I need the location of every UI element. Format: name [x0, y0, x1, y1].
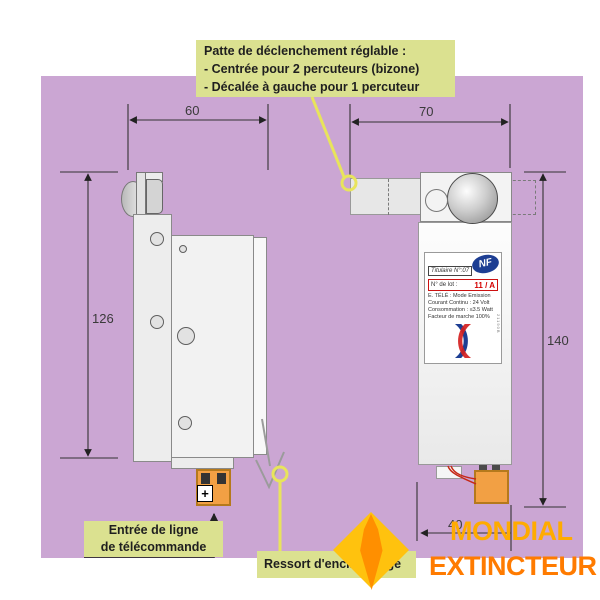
coil-connector [474, 470, 509, 504]
connector-terminal [217, 473, 226, 484]
note-entree-line2: de télécommande [84, 539, 223, 556]
left-device-roller-cap [146, 179, 163, 214]
brand-name-extincteur: EXTINCTEUR [429, 551, 597, 582]
note-entree-line1: Entrée de ligne [84, 522, 223, 539]
left-device-plate [133, 214, 172, 462]
dim-126-value: 126 [92, 311, 114, 326]
label-lot-caption: N° de lot : [431, 282, 457, 288]
dim-70-value: 70 [419, 104, 433, 119]
brand-flame-icon [333, 512, 413, 592]
plus-terminal-label: + [197, 485, 213, 502]
diagram-canvas: + NF Titulaire N°:07 N° de lot : 11 / A … [0, 0, 600, 600]
label-lot-value: 11 / A [474, 281, 495, 290]
screw-hole [179, 245, 187, 253]
screw-hole [150, 232, 164, 246]
dim-140-value: 140 [547, 333, 569, 348]
striker-knob [447, 173, 498, 224]
left-device-bracket [136, 172, 146, 219]
screw-hole [178, 416, 192, 430]
label-titulaire: Titulaire N°:07 [428, 266, 472, 276]
screw-hole [177, 327, 195, 345]
head-hole [425, 189, 448, 212]
label-spec-4: Facteur de marche 100% [428, 314, 498, 321]
note-top-line3: - Décalée à gauche pour 1 percuteur [204, 78, 447, 96]
brand-name-mondial: MONDIAL [450, 516, 572, 547]
dim-60-value: 60 [185, 103, 199, 118]
right-device-bottom-bracket [436, 466, 462, 479]
note-top-line2: - Centrée pour 2 percuteurs (bizone) [204, 60, 447, 78]
note-release-bracket: Patte de déclenchement réglable : - Cent… [196, 40, 455, 97]
connector-terminal [201, 473, 210, 484]
screw-hole [150, 315, 164, 329]
label-lot-row: N° de lot : 11 / A [428, 279, 498, 291]
release-bracket-arm [350, 178, 421, 215]
label-spec-1: E. TÉLÉ : Mode Emission [428, 293, 498, 300]
bracket-center-dashed-line [388, 179, 389, 215]
label-spec-3: Consommation : ≤3.5 Watt [428, 307, 498, 314]
left-device-channel [253, 237, 267, 455]
nf-logo: NF [470, 252, 500, 275]
label-emblem-icon [451, 324, 475, 358]
label-side-code: 21190B [496, 314, 501, 334]
product-label: NF Titulaire N°:07 N° de lot : 11 / A E.… [424, 252, 502, 364]
note-top-line1: Patte de déclenchement réglable : [204, 42, 447, 60]
label-spec-2: Courant Continu : 24 Volt [428, 300, 498, 307]
note-remote-line-entry: Entrée de ligne de télécommande [84, 521, 223, 557]
left-device-bottom-step [171, 457, 234, 469]
